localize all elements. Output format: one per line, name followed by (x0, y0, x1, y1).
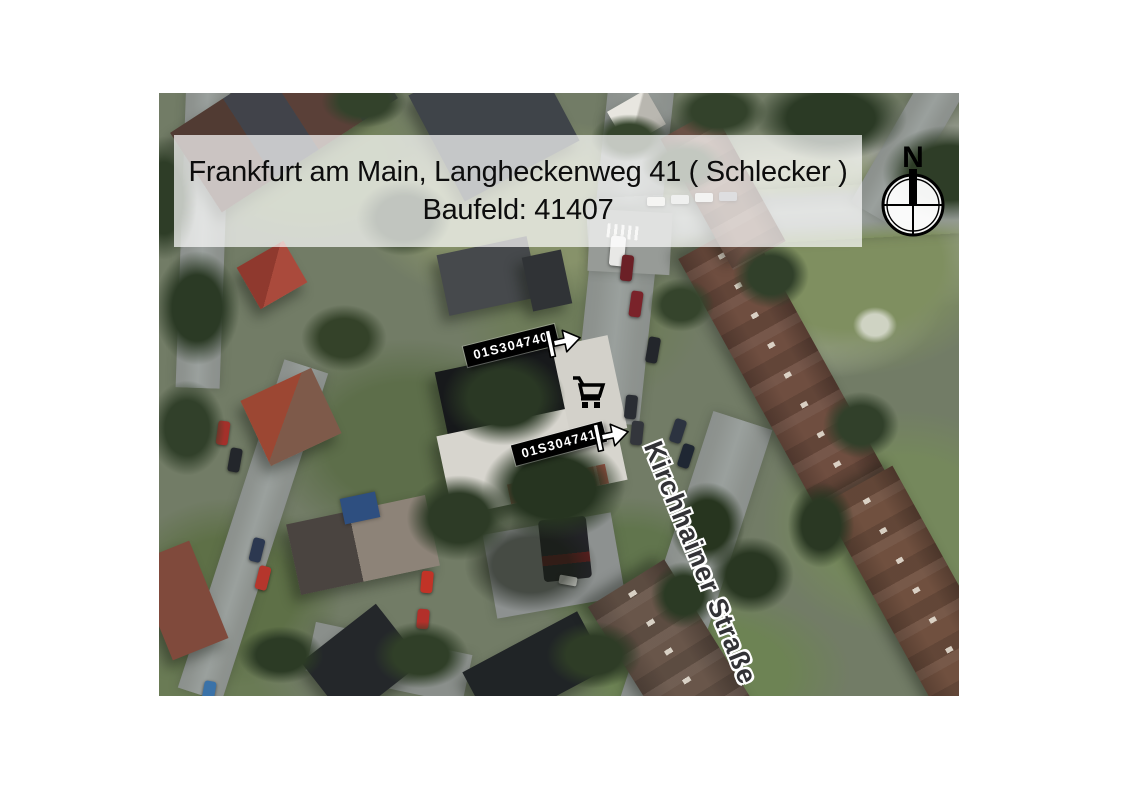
car-shape (215, 420, 230, 445)
building-apartment-block-2 (822, 466, 959, 696)
title-banner: Frankfurt am Main, Langheckenweg 41 ( Sc… (174, 135, 862, 247)
compass-rose-icon: N (875, 139, 951, 244)
building-red-house-small (237, 241, 308, 310)
building-dark-house-bottomcenter (462, 611, 607, 696)
entrance-arrow-icon (591, 415, 636, 459)
car-shape (420, 571, 434, 594)
car-shape (669, 418, 688, 445)
car-shape (416, 609, 430, 630)
building-mid-dark-annex (522, 249, 573, 311)
building-mid-dark (437, 236, 540, 316)
aerial-map: Kirchhainer Straße 01S304740 01S304741 (159, 93, 959, 696)
map-title-line1: Frankfurt am Main, Langheckenweg 41 ( Sc… (188, 153, 847, 191)
car-shape (677, 443, 696, 470)
van-shape (538, 516, 592, 583)
map-title-line2: Baufeld: 41407 (423, 191, 614, 229)
car-shape (227, 447, 243, 473)
roof-ridge (862, 497, 959, 696)
car-shape (201, 680, 217, 696)
shopping-cart-icon (567, 370, 609, 417)
entrance-arrow-icon (543, 321, 588, 365)
